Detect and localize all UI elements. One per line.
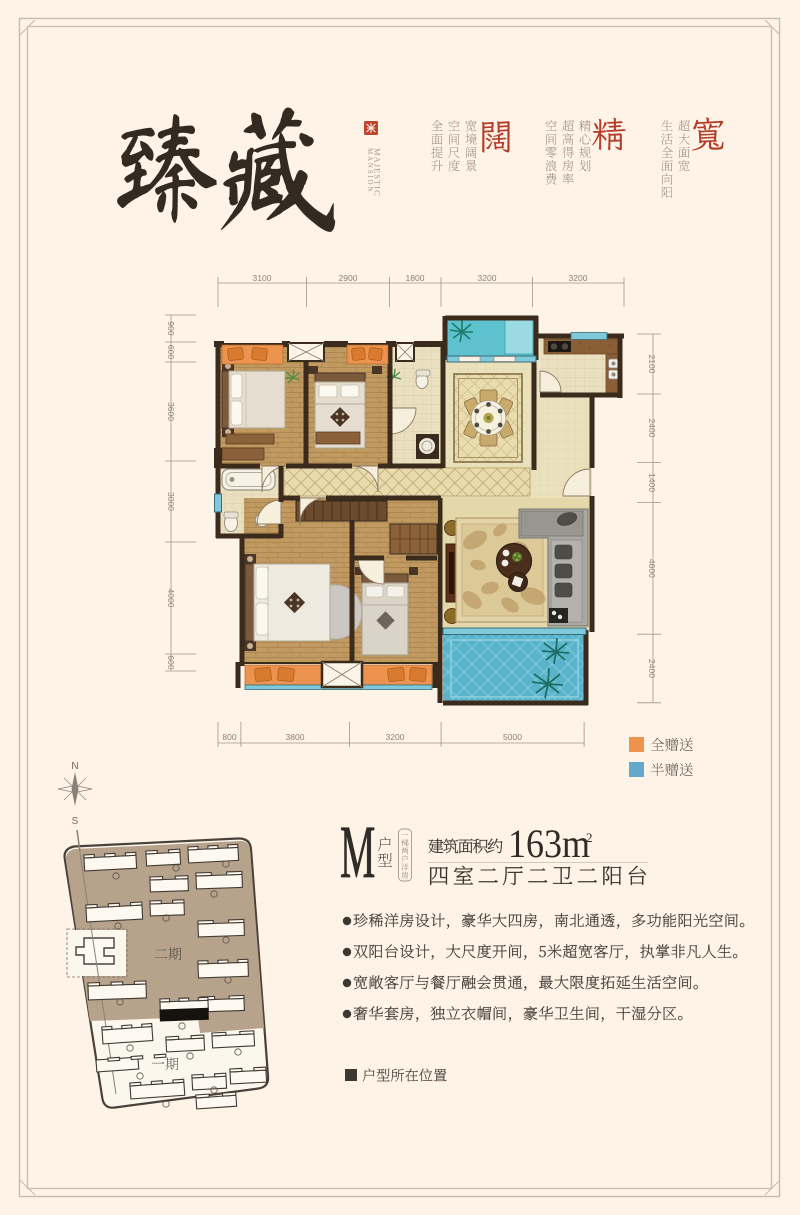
svg-text:2100: 2100 bbox=[647, 355, 657, 374]
svg-text:3200: 3200 bbox=[569, 273, 588, 283]
svg-text:2900: 2900 bbox=[339, 273, 358, 283]
svg-text:M: M bbox=[340, 811, 375, 893]
svg-text:N: N bbox=[71, 761, 78, 772]
svg-text:2400: 2400 bbox=[647, 419, 657, 438]
svg-text:1400: 1400 bbox=[647, 473, 657, 492]
svg-text:2400: 2400 bbox=[647, 659, 657, 678]
svg-text:600: 600 bbox=[166, 345, 176, 359]
svg-text:S: S bbox=[72, 816, 79, 827]
svg-text:4600: 4600 bbox=[647, 559, 657, 578]
svg-text:1800: 1800 bbox=[406, 273, 425, 283]
svg-text:800: 800 bbox=[222, 732, 236, 742]
svg-text:5000: 5000 bbox=[503, 732, 522, 742]
svg-text:3200: 3200 bbox=[478, 273, 497, 283]
svg-text:600: 600 bbox=[166, 655, 176, 669]
svg-text:3600: 3600 bbox=[166, 402, 176, 421]
svg-text:2: 2 bbox=[586, 830, 593, 845]
svg-text:4000: 4000 bbox=[166, 589, 176, 608]
svg-text:3100: 3100 bbox=[253, 273, 272, 283]
svg-text:3200: 3200 bbox=[386, 732, 405, 742]
svg-text:3000: 3000 bbox=[166, 492, 176, 511]
svg-text:MAJESTIC: MAJESTIC bbox=[373, 148, 383, 197]
svg-text:3800: 3800 bbox=[286, 732, 305, 742]
svg-text:900: 900 bbox=[166, 321, 176, 335]
svg-text:163m: 163m bbox=[508, 822, 590, 866]
